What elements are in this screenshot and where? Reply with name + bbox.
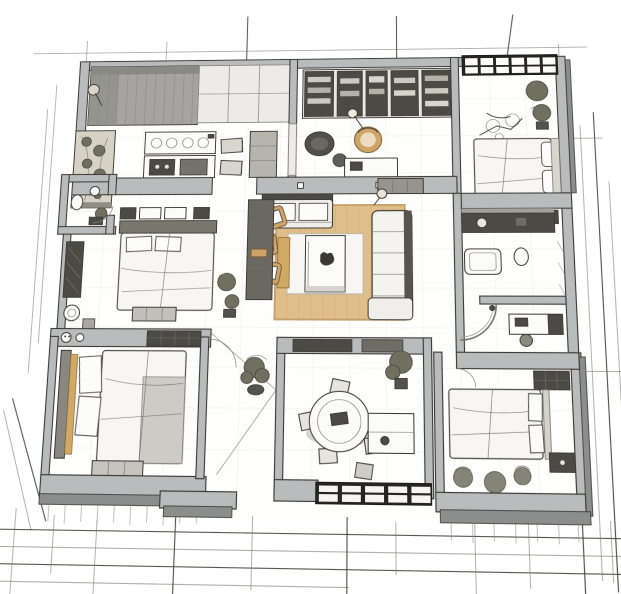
cooktop-icon	[149, 159, 175, 175]
coffee-table	[305, 236, 345, 295]
floor-plan-perspective-wrapper	[38, 54, 584, 520]
nightstand-left	[120, 208, 136, 219]
cooking-island	[143, 155, 215, 177]
sketch-canvas	[0, 0, 621, 594]
faucet-icon	[208, 134, 214, 138]
dresser-southwest	[92, 461, 144, 476]
vanity-counter	[461, 208, 554, 232]
centerpiece	[330, 412, 348, 426]
dresser-west	[132, 307, 176, 321]
kitchen-counter	[145, 132, 216, 154]
sink-icon	[477, 218, 487, 228]
shelf-band	[362, 340, 403, 352]
shower-head-icon	[490, 306, 495, 311]
stool	[355, 462, 374, 479]
sideboard	[368, 413, 414, 453]
round-dining-table	[309, 391, 369, 452]
wall-shelf	[147, 331, 201, 346]
toilet-icon	[514, 248, 529, 266]
decor-face-icon	[76, 334, 84, 342]
desk-chair	[520, 334, 533, 346]
mid-wall-band	[72, 176, 457, 195]
south-wall-hatch-se	[451, 523, 579, 545]
floor-plan-drawing	[38, 54, 584, 520]
band-west-south	[50, 329, 211, 348]
panoramic-window	[462, 55, 558, 76]
sink-icon	[90, 186, 100, 195]
wall-cabinet	[139, 208, 161, 219]
shelf-band	[293, 339, 352, 351]
decor-face-icon	[61, 332, 71, 342]
oven-icon	[180, 159, 207, 175]
small-box	[82, 319, 94, 329]
headboard	[119, 221, 217, 234]
nightstand-right	[194, 207, 210, 218]
wall-cabinet	[164, 208, 186, 219]
bed-west	[115, 221, 217, 311]
wardrobe-closet	[246, 200, 274, 300]
dining-window-wall	[316, 482, 432, 505]
laptop-icon	[350, 162, 362, 170]
mirror	[461, 208, 554, 213]
washer-icon	[63, 305, 80, 321]
monitor-icon	[515, 318, 528, 326]
sectional-sofa	[368, 211, 413, 320]
glass-door-kitchen-study	[288, 124, 297, 176]
blanket	[139, 377, 185, 464]
wall-shelf-se	[534, 371, 570, 390]
bed-southeast	[449, 389, 552, 459]
chaise-cushion	[368, 298, 413, 320]
glass-partition	[197, 65, 290, 123]
tall-cabinet	[249, 131, 277, 177]
bookshelves	[302, 68, 453, 118]
round-wicker-chair	[354, 127, 381, 153]
curtain-wall	[88, 66, 200, 126]
wardrobe	[63, 242, 84, 298]
small-cabinet	[548, 314, 563, 334]
nightstand-se	[549, 453, 575, 473]
